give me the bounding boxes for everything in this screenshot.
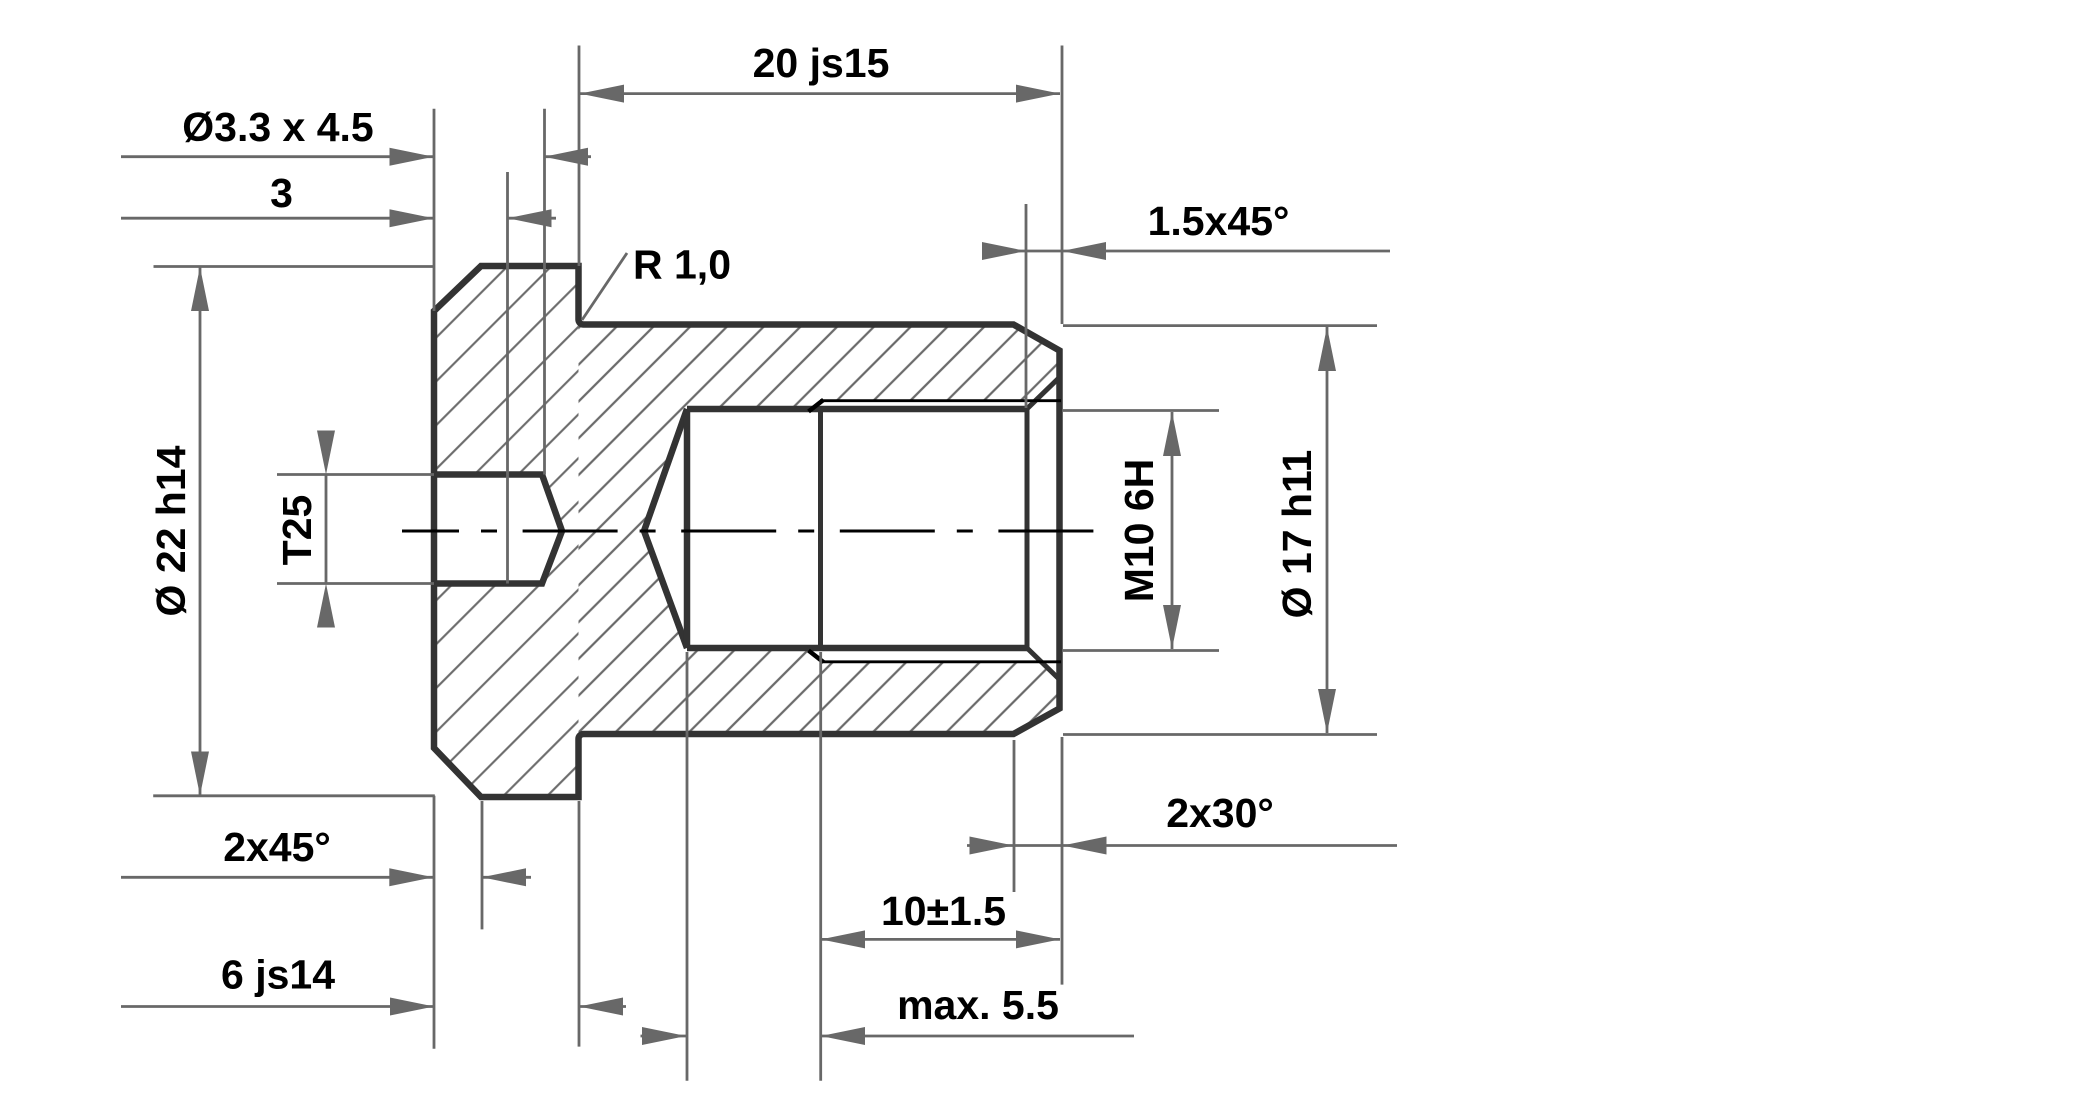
- svg-text:Ø 17 h11: Ø 17 h11: [1274, 450, 1320, 619]
- svg-text:2x30°: 2x30°: [1166, 790, 1274, 836]
- svg-text:20 js15: 20 js15: [753, 40, 890, 86]
- svg-text:R 1,0: R 1,0: [633, 242, 731, 288]
- svg-text:M10 6H: M10 6H: [1116, 459, 1162, 603]
- svg-text:Ø 22 h14: Ø 22 h14: [148, 445, 194, 616]
- svg-text:Ø3.3 x 4.5: Ø3.3 x 4.5: [182, 104, 373, 150]
- svg-text:6 js14: 6 js14: [221, 952, 335, 998]
- svg-text:3: 3: [270, 170, 293, 216]
- svg-text:T25: T25: [274, 495, 320, 566]
- svg-text:2x45°: 2x45°: [223, 824, 331, 870]
- svg-text:1.5x45°: 1.5x45°: [1148, 198, 1290, 244]
- svg-text:10±1.5: 10±1.5: [881, 888, 1006, 934]
- svg-text:max. 5.5: max. 5.5: [897, 982, 1059, 1028]
